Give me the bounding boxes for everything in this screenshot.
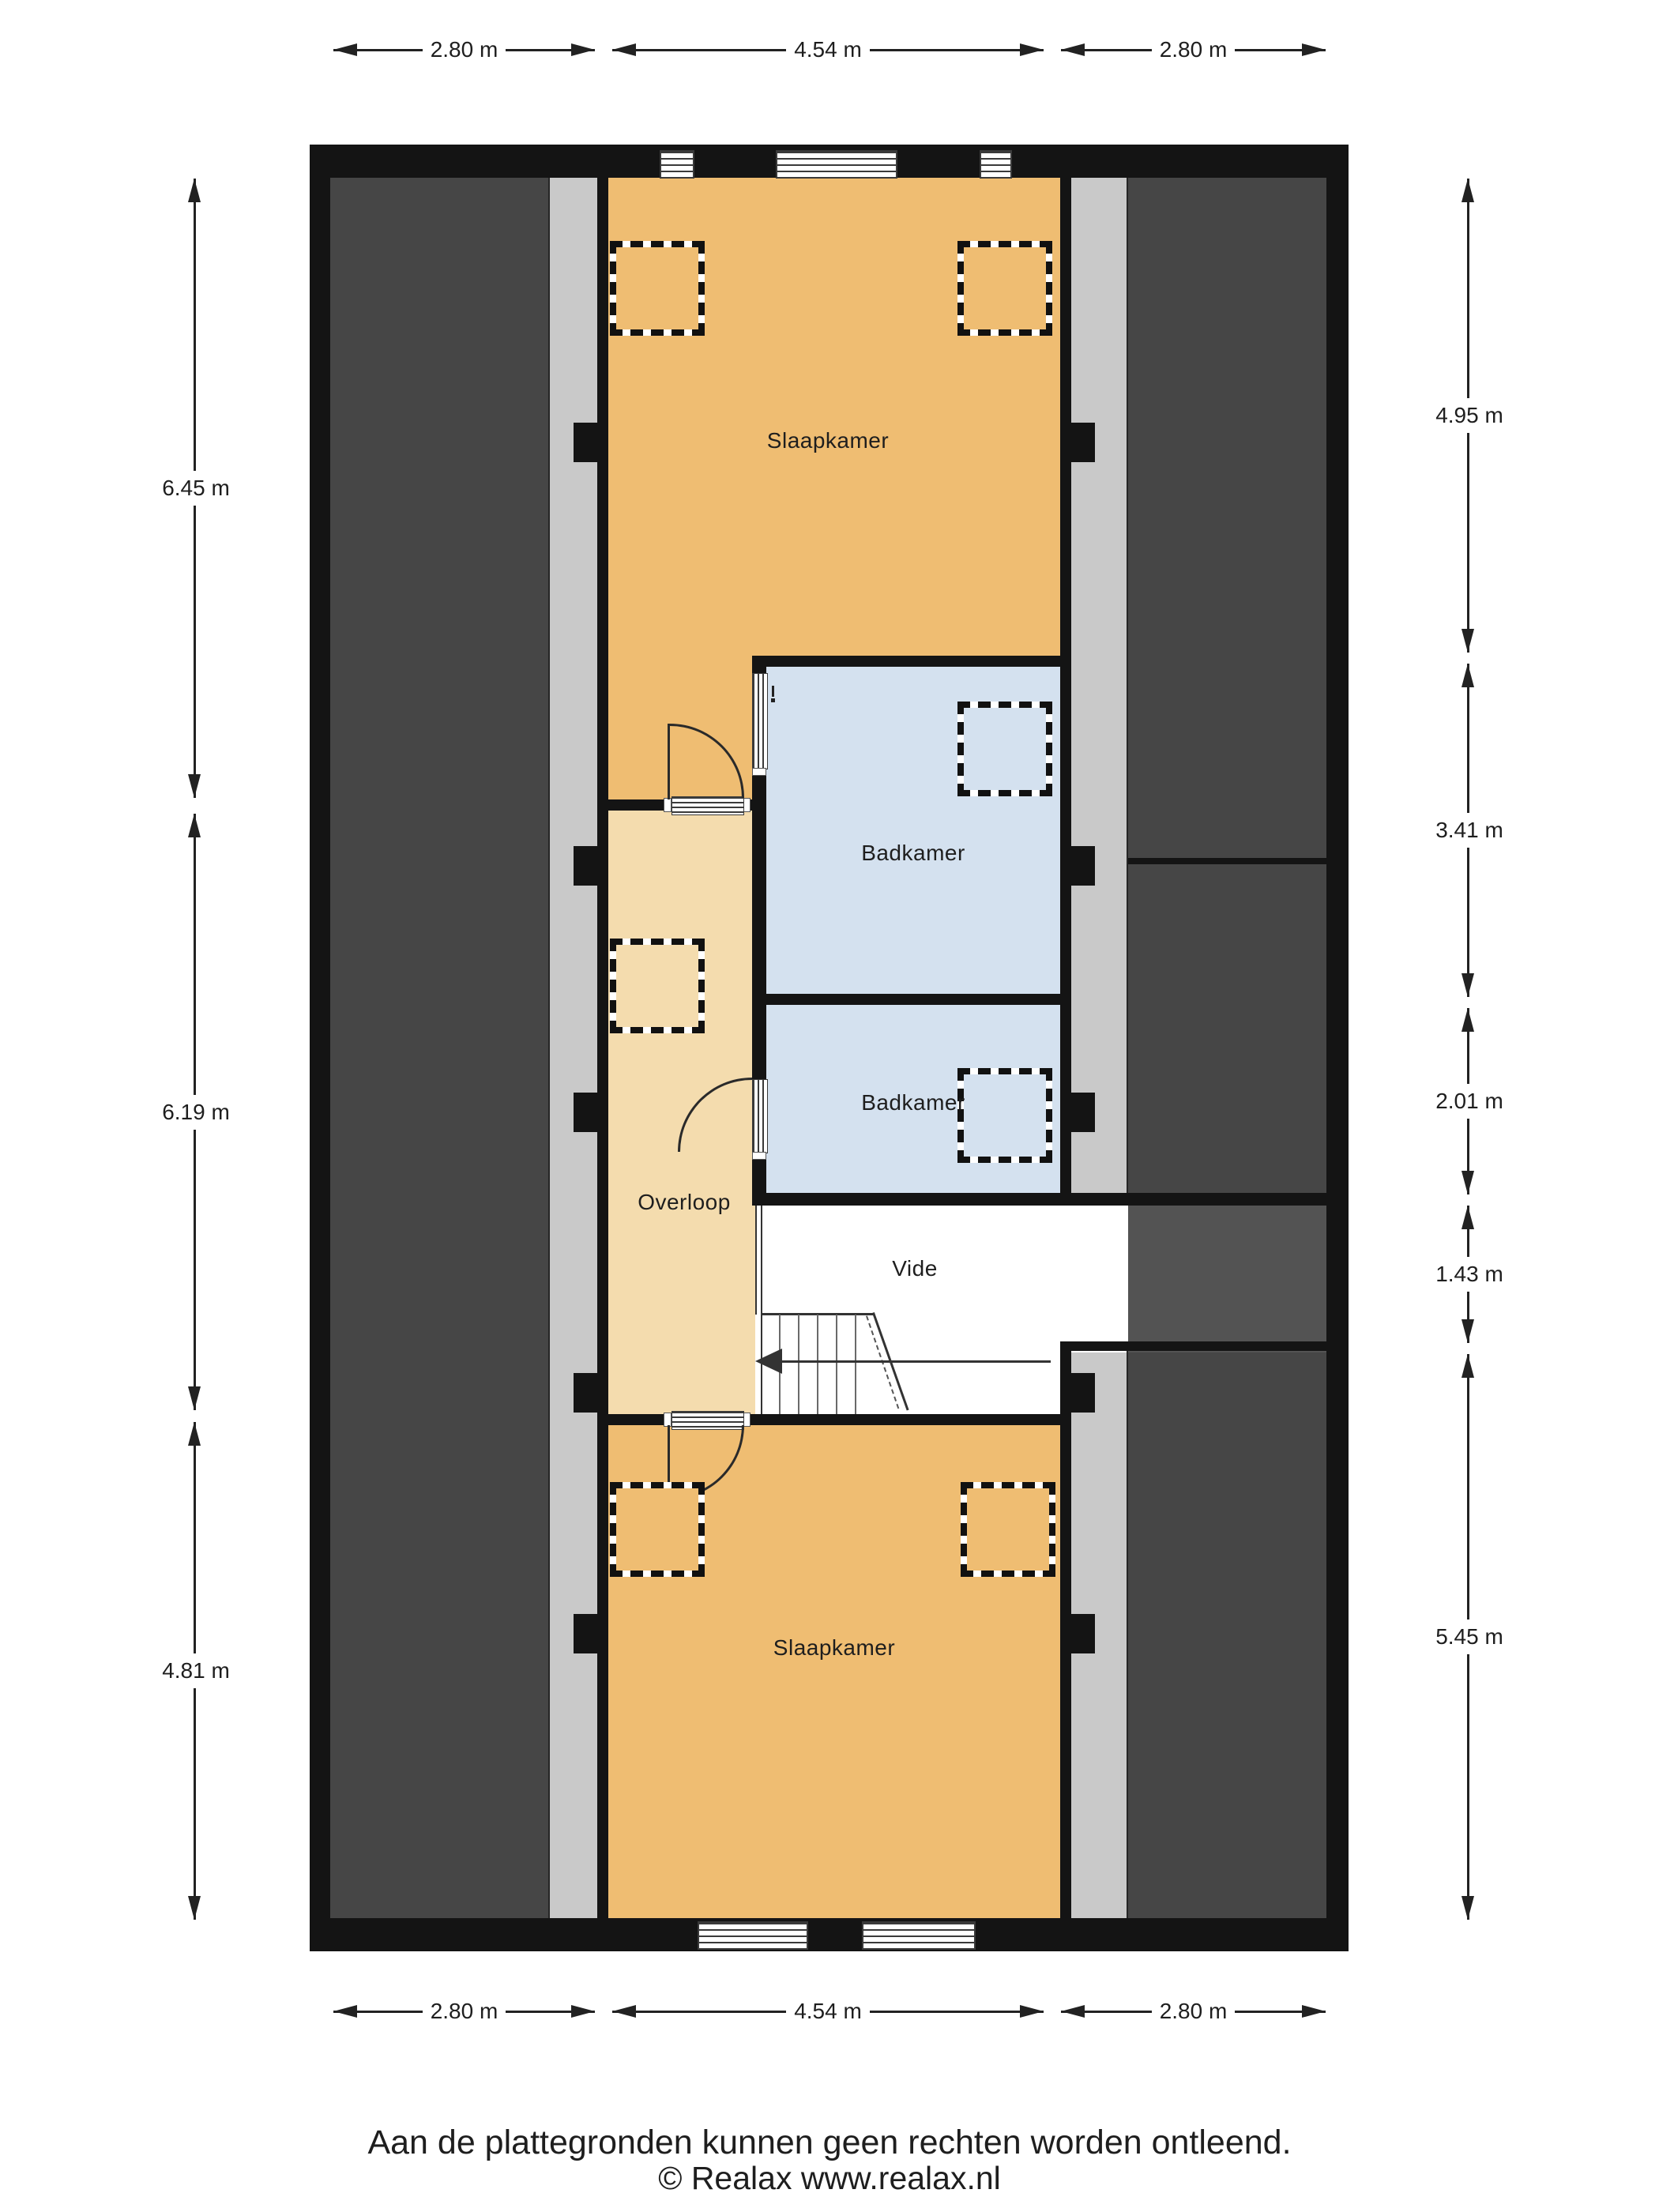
- dimension-label: 4.95 m: [1429, 398, 1510, 433]
- roof-window-icon: [957, 702, 1052, 796]
- door-tick: [772, 686, 774, 697]
- wall-rooms-right-lower: [1060, 1425, 1071, 1918]
- wall-stub: [1068, 846, 1095, 886]
- attic-left: [330, 178, 550, 1918]
- stair-direction-line: [779, 1360, 1051, 1363]
- dimension-label: 5.45 m: [1429, 1619, 1510, 1654]
- wall-rooms-right-upper: [1060, 178, 1071, 1199]
- roof-window-icon: [961, 1482, 1055, 1577]
- window: [862, 1921, 976, 1950]
- footer-disclaimer: Aan de plattegronden kunnen geen rechten…: [0, 2124, 1659, 2162]
- roof-window-icon: [957, 1068, 1052, 1163]
- arrow-up-icon: [188, 179, 201, 202]
- floor-plan-page: Slaapkamer Badkamer Badkamer Overloop Vi…: [0, 0, 1659, 2212]
- wall-badkamer-divider: [752, 994, 1071, 1005]
- dimension-left-3: 4.81 m: [194, 1422, 196, 1920]
- arrow-up-icon: [1461, 1008, 1474, 1032]
- wall-slaapkamer-bottom-top-a: [597, 1414, 664, 1425]
- wall-badkamer-top: [752, 656, 1071, 667]
- door-jamb: [752, 768, 766, 776]
- wall-stub: [574, 1614, 597, 1653]
- dimension-label: 1.43 m: [1429, 1257, 1510, 1292]
- door-jamb: [664, 798, 671, 812]
- door-jamb: [752, 1152, 766, 1160]
- wall-stub: [574, 846, 597, 886]
- arrow-up-icon: [1461, 664, 1474, 687]
- stair-tread: [855, 1315, 856, 1414]
- dimension-label: 4.81 m: [156, 1653, 236, 1688]
- arrow-down-icon: [1461, 973, 1474, 997]
- window: [660, 150, 694, 179]
- dimension-right-3: 2.01 m: [1467, 1008, 1469, 1194]
- door-tick-dot: [771, 698, 775, 702]
- dimension-left-1: 6.45 m: [194, 179, 196, 798]
- door-leaf: [668, 724, 670, 799]
- label-vide: Vide: [892, 1256, 938, 1281]
- roof-window-icon: [957, 241, 1052, 336]
- window: [698, 1921, 808, 1950]
- label-badkamer-1: Badkamer: [861, 841, 965, 866]
- arrow-down-icon: [1461, 1896, 1474, 1920]
- wall-slaapkamer-bottom-top-b: [750, 1414, 1071, 1425]
- wall-stub: [574, 423, 597, 462]
- dimension-bottom-1: 2.80 m: [333, 2011, 595, 2013]
- arrow-up-icon: [1461, 179, 1474, 202]
- wall-stub: [574, 1373, 597, 1413]
- dimension-top-3: 2.80 m: [1061, 49, 1326, 51]
- dimension-label: 2.01 m: [1429, 1084, 1510, 1119]
- arrow-up-icon: [1461, 1206, 1474, 1229]
- dimension-right-4: 1.43 m: [1467, 1206, 1469, 1343]
- dimension-label: 2.80 m: [423, 1999, 506, 2024]
- door-threshold: [671, 796, 744, 815]
- dimension-label: 6.19 m: [156, 1095, 236, 1130]
- label-slaapkamer-bottom: Slaapkamer: [773, 1635, 895, 1661]
- attic-right: [1128, 178, 1326, 1918]
- roof-window-icon: [610, 1482, 705, 1577]
- arrow-up-icon: [188, 814, 201, 837]
- stair-tread: [817, 1315, 818, 1414]
- dimension-bottom-3: 2.80 m: [1061, 2011, 1326, 2013]
- dimension-label: 2.80 m: [423, 37, 506, 62]
- dimension-right-5: 5.45 m: [1467, 1354, 1469, 1920]
- dimension-top-2: 4.54 m: [612, 49, 1044, 51]
- dimension-right-1: 4.95 m: [1467, 179, 1469, 653]
- arrow-down-icon: [188, 774, 201, 798]
- dimension-right-2: 3.41 m: [1467, 664, 1469, 997]
- dimension-left-2: 6.19 m: [194, 814, 196, 1410]
- dimension-label: 6.45 m: [156, 471, 236, 506]
- wall-badkamer2-bottom: [752, 1193, 1326, 1206]
- kneewall-strip-right-upper: [1071, 178, 1128, 1199]
- label-badkamer-2: Badkamer: [861, 1090, 965, 1115]
- wall-slaapkamer-overloop-a: [597, 799, 664, 811]
- attic-right-void-section: [1128, 1199, 1326, 1352]
- wall-stub: [574, 1093, 597, 1132]
- stair-tread: [798, 1315, 799, 1414]
- wall-vide-bottom-right: [1060, 1341, 1326, 1351]
- roof-window-icon: [610, 939, 705, 1033]
- dimension-label: 4.54 m: [786, 1999, 870, 2024]
- railing: [755, 1206, 757, 1315]
- dimension-label: 2.80 m: [1152, 37, 1236, 62]
- attic-strip-divider-right: [1127, 178, 1128, 1918]
- door-panel: [752, 1079, 768, 1153]
- room-vide-lower: [755, 1341, 1060, 1414]
- roof-window-icon: [610, 241, 705, 336]
- arrow-down-icon: [1461, 1171, 1474, 1194]
- dimension-top-1: 2.80 m: [333, 49, 595, 51]
- window: [980, 150, 1012, 179]
- dimension-label: 4.54 m: [786, 37, 870, 62]
- footer-copyright: © Realax www.realax.nl: [0, 2160, 1659, 2197]
- railing: [761, 1206, 762, 1315]
- stair-tread: [836, 1315, 837, 1414]
- attic-strip-divider-left: [548, 178, 550, 1918]
- arrow-down-icon: [188, 1386, 201, 1410]
- arrow-down-icon: [1461, 1319, 1474, 1343]
- arrow-up-icon: [1461, 1354, 1474, 1378]
- arrow-up-icon: [188, 1422, 201, 1446]
- arrow-down-icon: [188, 1896, 201, 1920]
- label-slaapkamer-top: Slaapkamer: [767, 428, 889, 453]
- dimension-label: 3.41 m: [1429, 813, 1510, 848]
- label-overloop: Overloop: [638, 1190, 731, 1215]
- dimension-bottom-2: 4.54 m: [612, 2011, 1044, 2013]
- wall-rooms-left: [597, 178, 608, 1918]
- wall-stub: [1068, 1373, 1095, 1413]
- arrow-down-icon: [1461, 629, 1474, 653]
- wall-stub: [1068, 1614, 1095, 1653]
- stair-direction-arrow-icon: [755, 1349, 782, 1374]
- window: [776, 150, 897, 179]
- wall-stub: [1068, 423, 1095, 462]
- dimension-label: 2.80 m: [1152, 1999, 1236, 2024]
- wall-stub: [1068, 1093, 1095, 1132]
- room-vide-upper: [755, 1206, 1128, 1341]
- attic-right-divider: [1128, 858, 1326, 864]
- sliding-door: [752, 673, 768, 769]
